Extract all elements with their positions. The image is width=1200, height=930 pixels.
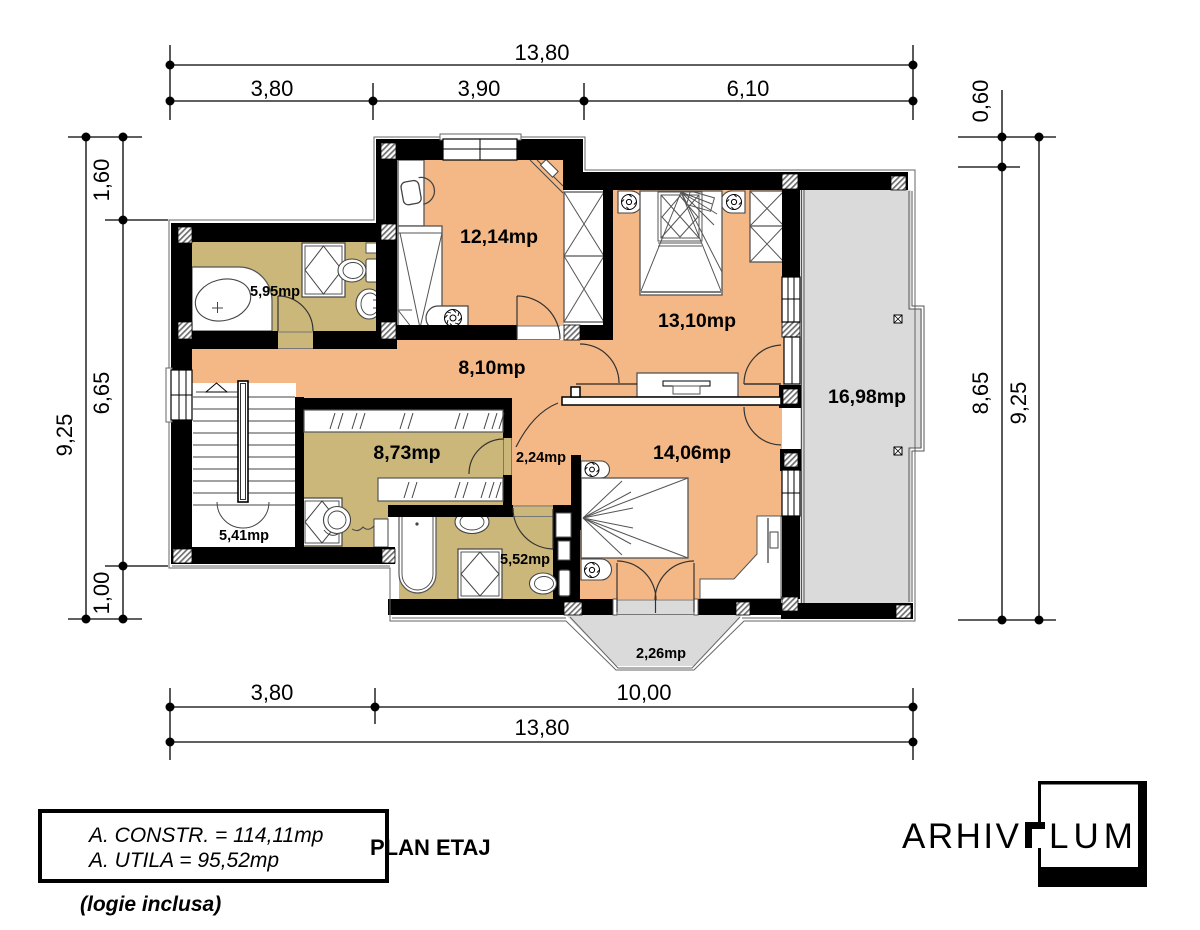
svg-text:PLAN ETAJ: PLAN ETAJ [370,835,491,860]
svg-text:10,00: 10,00 [616,680,671,705]
svg-text:9,25: 9,25 [52,414,77,457]
svg-text:8,65: 8,65 [968,372,993,415]
svg-text:2,24mp: 2,24mp [516,450,566,466]
svg-text:LUM: LUM [1049,817,1138,856]
svg-text:3,80: 3,80 [251,76,294,101]
svg-text:6,10: 6,10 [727,76,770,101]
svg-text:(logie inclusa): (logie inclusa) [80,893,221,916]
svg-text:A. UTILA = 95,52mp: A. UTILA = 95,52mp [87,849,279,872]
svg-text:6,65: 6,65 [89,372,114,415]
svg-text:ARHIV: ARHIV [902,817,1021,856]
svg-text:1,60: 1,60 [89,159,114,202]
svg-text:A. CONSTR. = 114,11mp: A. CONSTR. = 114,11mp [87,824,323,847]
svg-text:13,10mp: 13,10mp [658,310,736,332]
svg-text:8,73mp: 8,73mp [373,442,440,464]
svg-text:5,95mp: 5,95mp [250,284,300,300]
svg-text:9,25: 9,25 [1006,382,1031,425]
svg-text:5,41mp: 5,41mp [219,528,269,544]
svg-text:16,98mp: 16,98mp [828,386,906,408]
svg-text:0,60: 0,60 [968,80,993,123]
svg-text:5,52mp: 5,52mp [500,552,550,568]
svg-text:14,06mp: 14,06mp [653,442,731,464]
svg-text:8,10mp: 8,10mp [458,357,525,379]
svg-text:12,14mp: 12,14mp [460,226,538,248]
svg-text:13,80: 13,80 [514,715,569,740]
svg-text:2,26mp: 2,26mp [636,646,686,662]
svg-text:1,00: 1,00 [89,572,114,615]
svg-text:13,80: 13,80 [514,40,569,65]
svg-text:3,80: 3,80 [251,680,294,705]
svg-text:3,90: 3,90 [458,76,501,101]
